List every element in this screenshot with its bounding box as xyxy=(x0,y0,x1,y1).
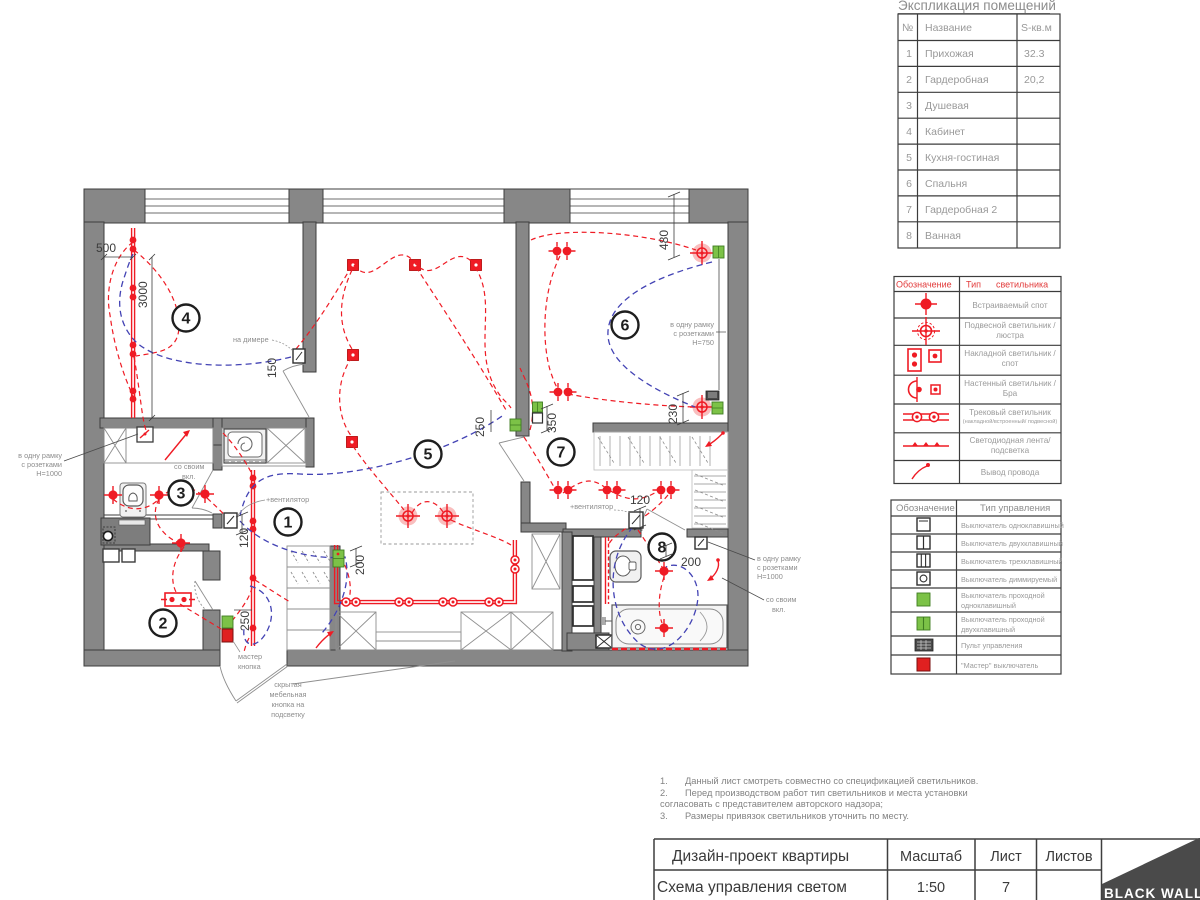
svg-text:Прихожая: Прихожая xyxy=(925,48,974,60)
svg-text:1:50: 1:50 xyxy=(917,880,945,896)
svg-text:3: 3 xyxy=(177,486,186,503)
svg-text:230: 230 xyxy=(666,404,680,424)
svg-text:2: 2 xyxy=(159,616,168,633)
svg-text:на димере: на димере xyxy=(233,335,269,344)
svg-text:Душевая: Душевая xyxy=(925,100,969,112)
svg-text:3.: 3. xyxy=(660,811,668,821)
svg-text:№: № xyxy=(902,22,913,34)
svg-text:5: 5 xyxy=(424,447,433,464)
svg-text:подсветка: подсветка xyxy=(991,446,1030,455)
svg-text:S-кв.м: S-кв.м xyxy=(1021,22,1052,34)
svg-text:Кабинет: Кабинет xyxy=(925,126,965,138)
svg-text:кнопка на: кнопка на xyxy=(272,700,306,709)
svg-text:250: 250 xyxy=(473,417,487,437)
svg-text:Выключатель одноклавишный: Выключатель одноклавишный xyxy=(961,521,1064,530)
svg-text:2: 2 xyxy=(906,74,912,86)
svg-text:3: 3 xyxy=(906,100,912,112)
svg-text:с розетками: с розетками xyxy=(21,460,62,469)
svg-text:вкл.: вкл. xyxy=(772,605,785,614)
svg-text:с розетками: с розетками xyxy=(757,563,798,572)
svg-text:2.: 2. xyxy=(660,788,668,798)
svg-text:со своим: со своим xyxy=(766,595,796,604)
svg-text:кнопка: кнопка xyxy=(238,662,262,671)
svg-text:Название: Название xyxy=(925,22,972,34)
svg-text:Дизайн-проект квартиры: Дизайн-проект квартиры xyxy=(672,848,849,865)
svg-text:Размеры привязок светильников: Размеры привязок светильников уточнить п… xyxy=(685,811,909,821)
svg-text:Н=1000: Н=1000 xyxy=(757,572,783,581)
svg-text:Выключатель диммируемый: Выключатель диммируемый xyxy=(961,575,1057,584)
svg-text:Настенный светильник /: Настенный светильник / xyxy=(964,379,1056,388)
svg-text:120: 120 xyxy=(630,493,650,507)
svg-text:Выключатель трехклавишный: Выключатель трехклавишный xyxy=(961,557,1063,566)
svg-text:BLACK WALL: BLACK WALL xyxy=(1104,886,1200,900)
svg-text:Накладной светильник /: Накладной светильник / xyxy=(964,349,1056,358)
svg-text:Светодиодная лента/: Светодиодная лента/ xyxy=(969,436,1051,445)
svg-text:Н=1000: Н=1000 xyxy=(36,469,62,478)
svg-text:500: 500 xyxy=(96,241,116,255)
svg-text:Н=750: Н=750 xyxy=(692,338,714,347)
svg-text:Выключатель проходной: Выключатель проходной xyxy=(961,615,1045,624)
svg-text:Выключатель двухклавишный: Выключатель двухклавишный xyxy=(961,539,1063,548)
svg-text:4: 4 xyxy=(182,311,191,328)
svg-text:люстра: люстра xyxy=(996,331,1024,340)
svg-text:подсветку: подсветку xyxy=(271,710,305,719)
svg-text:Обозначение: Обозначение xyxy=(896,280,952,290)
svg-text:8: 8 xyxy=(658,540,667,557)
svg-text:480: 480 xyxy=(657,230,671,250)
svg-text:20,2: 20,2 xyxy=(1024,74,1045,86)
svg-text:Тип: Тип xyxy=(966,280,981,290)
svg-text:светильника: светильника xyxy=(996,280,1048,290)
svg-text:согласовать с представителем а: согласовать с представителем авторского … xyxy=(660,799,883,809)
svg-text:Подвесной светильник /: Подвесной светильник / xyxy=(964,321,1056,330)
svg-text:Спальня: Спальня xyxy=(925,178,967,190)
svg-text:250: 250 xyxy=(238,611,252,631)
svg-text:двухклавишный: двухклавишный xyxy=(961,625,1015,634)
svg-text:1: 1 xyxy=(284,515,293,532)
svg-text:Встраиваемый спот: Встраиваемый спот xyxy=(972,301,1048,310)
svg-text:Данный лист смотреть совместно: Данный лист смотреть совместно со специф… xyxy=(685,776,978,786)
svg-text:со своим: со своим xyxy=(174,462,204,471)
svg-text:Ванная: Ванная xyxy=(925,230,961,242)
svg-text:120: 120 xyxy=(237,528,251,548)
svg-text:Перед производством работ тип: Перед производством работ тип светильник… xyxy=(685,788,968,798)
svg-text:мебельная: мебельная xyxy=(269,690,306,699)
svg-text:в одну рамку: в одну рамку xyxy=(18,451,62,460)
svg-text:7: 7 xyxy=(906,204,912,216)
svg-text:Тип управления: Тип управления xyxy=(980,503,1050,514)
svg-text:в одну рамку: в одну рамку xyxy=(757,554,801,563)
svg-text:32.3: 32.3 xyxy=(1024,48,1045,60)
svg-text:8: 8 xyxy=(906,230,912,242)
svg-text:+вентилятор: +вентилятор xyxy=(570,502,613,511)
svg-text:спот: спот xyxy=(1002,359,1019,368)
svg-text:Лист: Лист xyxy=(990,849,1022,865)
svg-text:Гардеробная 2: Гардеробная 2 xyxy=(925,204,997,216)
svg-text:одноклавишный: одноклавишный xyxy=(961,601,1016,610)
svg-text:Вывод провода: Вывод провода xyxy=(981,468,1040,477)
svg-text:200: 200 xyxy=(681,555,701,569)
svg-text:5: 5 xyxy=(906,152,912,164)
svg-text:мастер: мастер xyxy=(238,652,262,661)
svg-text:Обозначение: Обозначение xyxy=(896,503,955,514)
svg-text:в одну рамку: в одну рамку xyxy=(670,320,714,329)
svg-text:с розетками: с розетками xyxy=(673,329,714,338)
svg-text:"Мастер" выключатель: "Мастер" выключатель xyxy=(961,661,1038,670)
svg-text:скрытая: скрытая xyxy=(274,680,301,689)
svg-text:вкл.: вкл. xyxy=(182,472,195,481)
svg-text:6: 6 xyxy=(906,178,912,190)
svg-text:Гардеробная: Гардеробная xyxy=(925,74,989,86)
svg-text:Экспликация помещений: Экспликация помещений xyxy=(898,0,1056,13)
svg-text:Бра: Бра xyxy=(1003,389,1018,398)
svg-text:Пульт управления: Пульт управления xyxy=(961,641,1022,650)
svg-text:4: 4 xyxy=(906,126,912,138)
svg-text:150: 150 xyxy=(265,358,279,378)
svg-text:Выключатель проходной: Выключатель проходной xyxy=(961,591,1045,600)
svg-text:7: 7 xyxy=(1002,880,1010,896)
svg-text:Листов: Листов xyxy=(1045,849,1092,865)
svg-text:Схема управления светом: Схема управления светом xyxy=(657,879,847,896)
svg-text:7: 7 xyxy=(557,445,566,462)
svg-text:(накладной/встроенный/ подвесн: (накладной/встроенный/ подвесной) xyxy=(963,418,1058,425)
svg-text:Трековый светильник: Трековый светильник xyxy=(969,408,1051,417)
svg-text:Масштаб: Масштаб xyxy=(900,849,962,865)
svg-text:1: 1 xyxy=(906,48,912,60)
svg-text:6: 6 xyxy=(621,318,630,335)
svg-text:1.: 1. xyxy=(660,776,668,786)
svg-text:3000: 3000 xyxy=(136,281,150,308)
svg-text:Кухня-гостиная: Кухня-гостиная xyxy=(925,152,999,164)
svg-text:+вентилятор: +вентилятор xyxy=(266,495,309,504)
